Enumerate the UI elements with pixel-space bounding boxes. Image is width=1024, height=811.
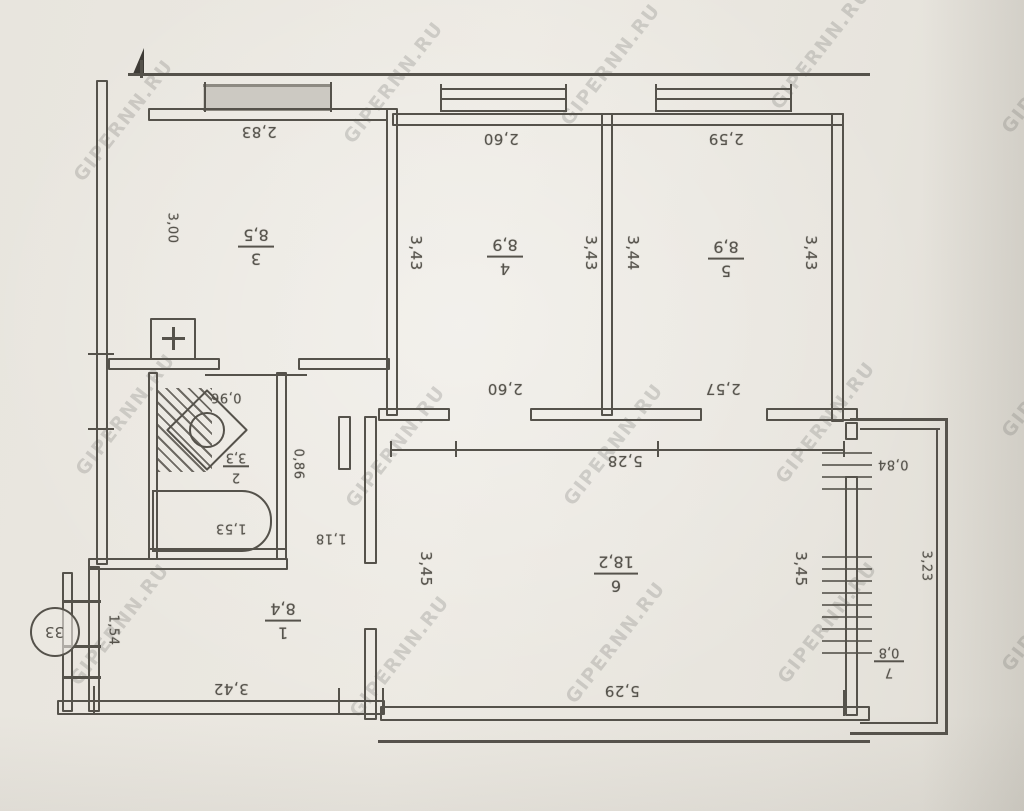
sink-bowl-icon (189, 412, 225, 448)
room-area: 18,2 (598, 553, 634, 571)
wall-hall-room6-a (364, 416, 377, 564)
dim-tick (790, 84, 792, 112)
wall-left-exterior (96, 80, 108, 565)
dim-tick (655, 84, 657, 112)
wall-bottom-outer-line (378, 740, 870, 743)
duct-wall (338, 416, 351, 470)
fraction-bar (265, 620, 301, 622)
dimension-label: 2,83 (241, 123, 276, 141)
landing-line (63, 676, 101, 679)
room-area: 3,3 (226, 449, 247, 463)
dimension-label: 3,23 (919, 551, 934, 582)
dimension-label: 0,84 (878, 457, 909, 472)
room-number: 1 (278, 624, 288, 642)
dimension-label: 3,42 (213, 680, 248, 698)
window-room5 (655, 88, 791, 112)
radiator-hatch (822, 452, 872, 496)
balcony-wall-top-inner (860, 428, 940, 430)
room-number: 3 (251, 250, 261, 268)
wall-right-exterior-upper (831, 113, 844, 422)
room-label-5: 5 8,9 (708, 238, 744, 279)
dimension-label: 2,60 (487, 380, 522, 398)
dimension-label: 1,18 (316, 531, 347, 546)
room-area: 8,9 (713, 238, 738, 256)
room-label-7: 7 0,8 (874, 644, 904, 679)
room-area: 8,5 (243, 226, 268, 244)
room-number: 5 (721, 262, 731, 280)
dim-tick (390, 441, 392, 457)
balcony-wall-right (945, 418, 948, 735)
dimension-label: 5,29 (604, 682, 639, 700)
fraction-bar (487, 256, 523, 258)
watermark-text: GIPERNN.RU (997, 545, 1024, 675)
watermark-text: GIPERNN.RU (559, 379, 668, 509)
dim-tick (382, 688, 384, 714)
balcony-wall-top (850, 418, 948, 421)
balcony-slab-hatch (203, 84, 331, 111)
dimension-label: 5,28 (607, 452, 642, 470)
dimension-label: 3,44 (624, 235, 642, 270)
dimension-label: 0,86 (291, 449, 306, 480)
dim-tick (204, 82, 206, 112)
balcony-wall-bottom (850, 732, 948, 735)
wall-room3-top (148, 108, 388, 121)
dim-tick (440, 84, 442, 112)
dimension-label: 2,57 (705, 380, 740, 398)
dim-tick (88, 353, 114, 355)
window-room4 (440, 88, 566, 112)
watermark-text: GIPERNN.RU (556, 0, 665, 130)
dim-tick (330, 82, 332, 112)
wall-hall-top (88, 558, 288, 570)
wall-room6-top-b (530, 408, 702, 421)
dimension-label: 2,59 (708, 130, 743, 148)
dimension-label: 3,43 (407, 235, 425, 270)
dimension-label: 2,60 (483, 130, 518, 148)
wall-room4-room5 (601, 113, 613, 416)
dim-tick (843, 690, 845, 716)
dimension-label: 3,45 (792, 551, 810, 586)
wall-top-outer (128, 73, 870, 76)
dim-tick (657, 441, 659, 457)
fraction-bar (223, 465, 249, 467)
dimension-label: 0,96 (211, 390, 242, 405)
fraction-bar (594, 573, 638, 575)
dim-tick (455, 441, 457, 457)
dim-tick (88, 428, 114, 430)
dim-tick (565, 84, 567, 112)
dimension-label: 3,43 (802, 235, 820, 270)
room-area: 8,4 (270, 600, 295, 618)
room-number: 4 (500, 260, 510, 278)
fraction-bar (238, 246, 274, 248)
room-label-2: 2 3,3 (223, 449, 249, 484)
door-sill-room3 (205, 374, 307, 376)
dimension-label: 3,43 (582, 235, 600, 270)
dim-tick (338, 688, 340, 714)
landing-line (63, 600, 101, 603)
wall-room3-bottom-b (298, 358, 390, 370)
dimension-label: 3,45 (417, 551, 435, 586)
bathtub (152, 490, 272, 552)
room-label-3: 3 8,5 (238, 226, 274, 267)
apartment-number: 33 (45, 623, 64, 641)
dimension-label: 3,00 (165, 213, 180, 244)
room-number: 2 (232, 469, 240, 483)
wall-right-exterior-lower-a (845, 422, 858, 440)
wall-room6-top-c (766, 408, 858, 421)
room-area: 8,9 (492, 236, 517, 254)
dim-tick (93, 686, 95, 714)
radiator-hatch (822, 556, 872, 664)
wall-bath-right (276, 372, 287, 560)
watermark-text: GIPERNN.RU (997, 311, 1024, 441)
room-area: 0,8 (879, 644, 900, 658)
floor-plan-scan: GIPERNN.RUGIPERNN.RUGIPERNN.RUGIPERNN.RU… (0, 0, 1024, 811)
room-label-6: 6 18,2 (594, 553, 638, 594)
room-label-1: 1 8,4 (265, 600, 301, 641)
balcony-wall-right-inner (936, 428, 938, 724)
room-number: 7 (885, 664, 893, 678)
dim-line-528 (390, 449, 844, 451)
room-number: 6 (611, 577, 621, 595)
dimension-label: 1,54 (106, 615, 121, 646)
fraction-bar (874, 660, 904, 662)
fraction-bar (708, 258, 744, 260)
wall-bottom-right (380, 706, 870, 721)
wall-rooms45-top (392, 113, 844, 126)
wall-room6-top-a (378, 408, 450, 421)
vent-plus-icon (172, 327, 175, 350)
apartment-number-badge: 33 (30, 607, 80, 657)
wall-bottom-left (57, 700, 385, 715)
dimension-label: 1,53 (216, 521, 247, 536)
watermark-text: GIPERNN.RU (997, 7, 1024, 137)
room-label-4: 4 8,9 (487, 236, 523, 277)
balcony-wall-bottom-inner (860, 722, 938, 724)
